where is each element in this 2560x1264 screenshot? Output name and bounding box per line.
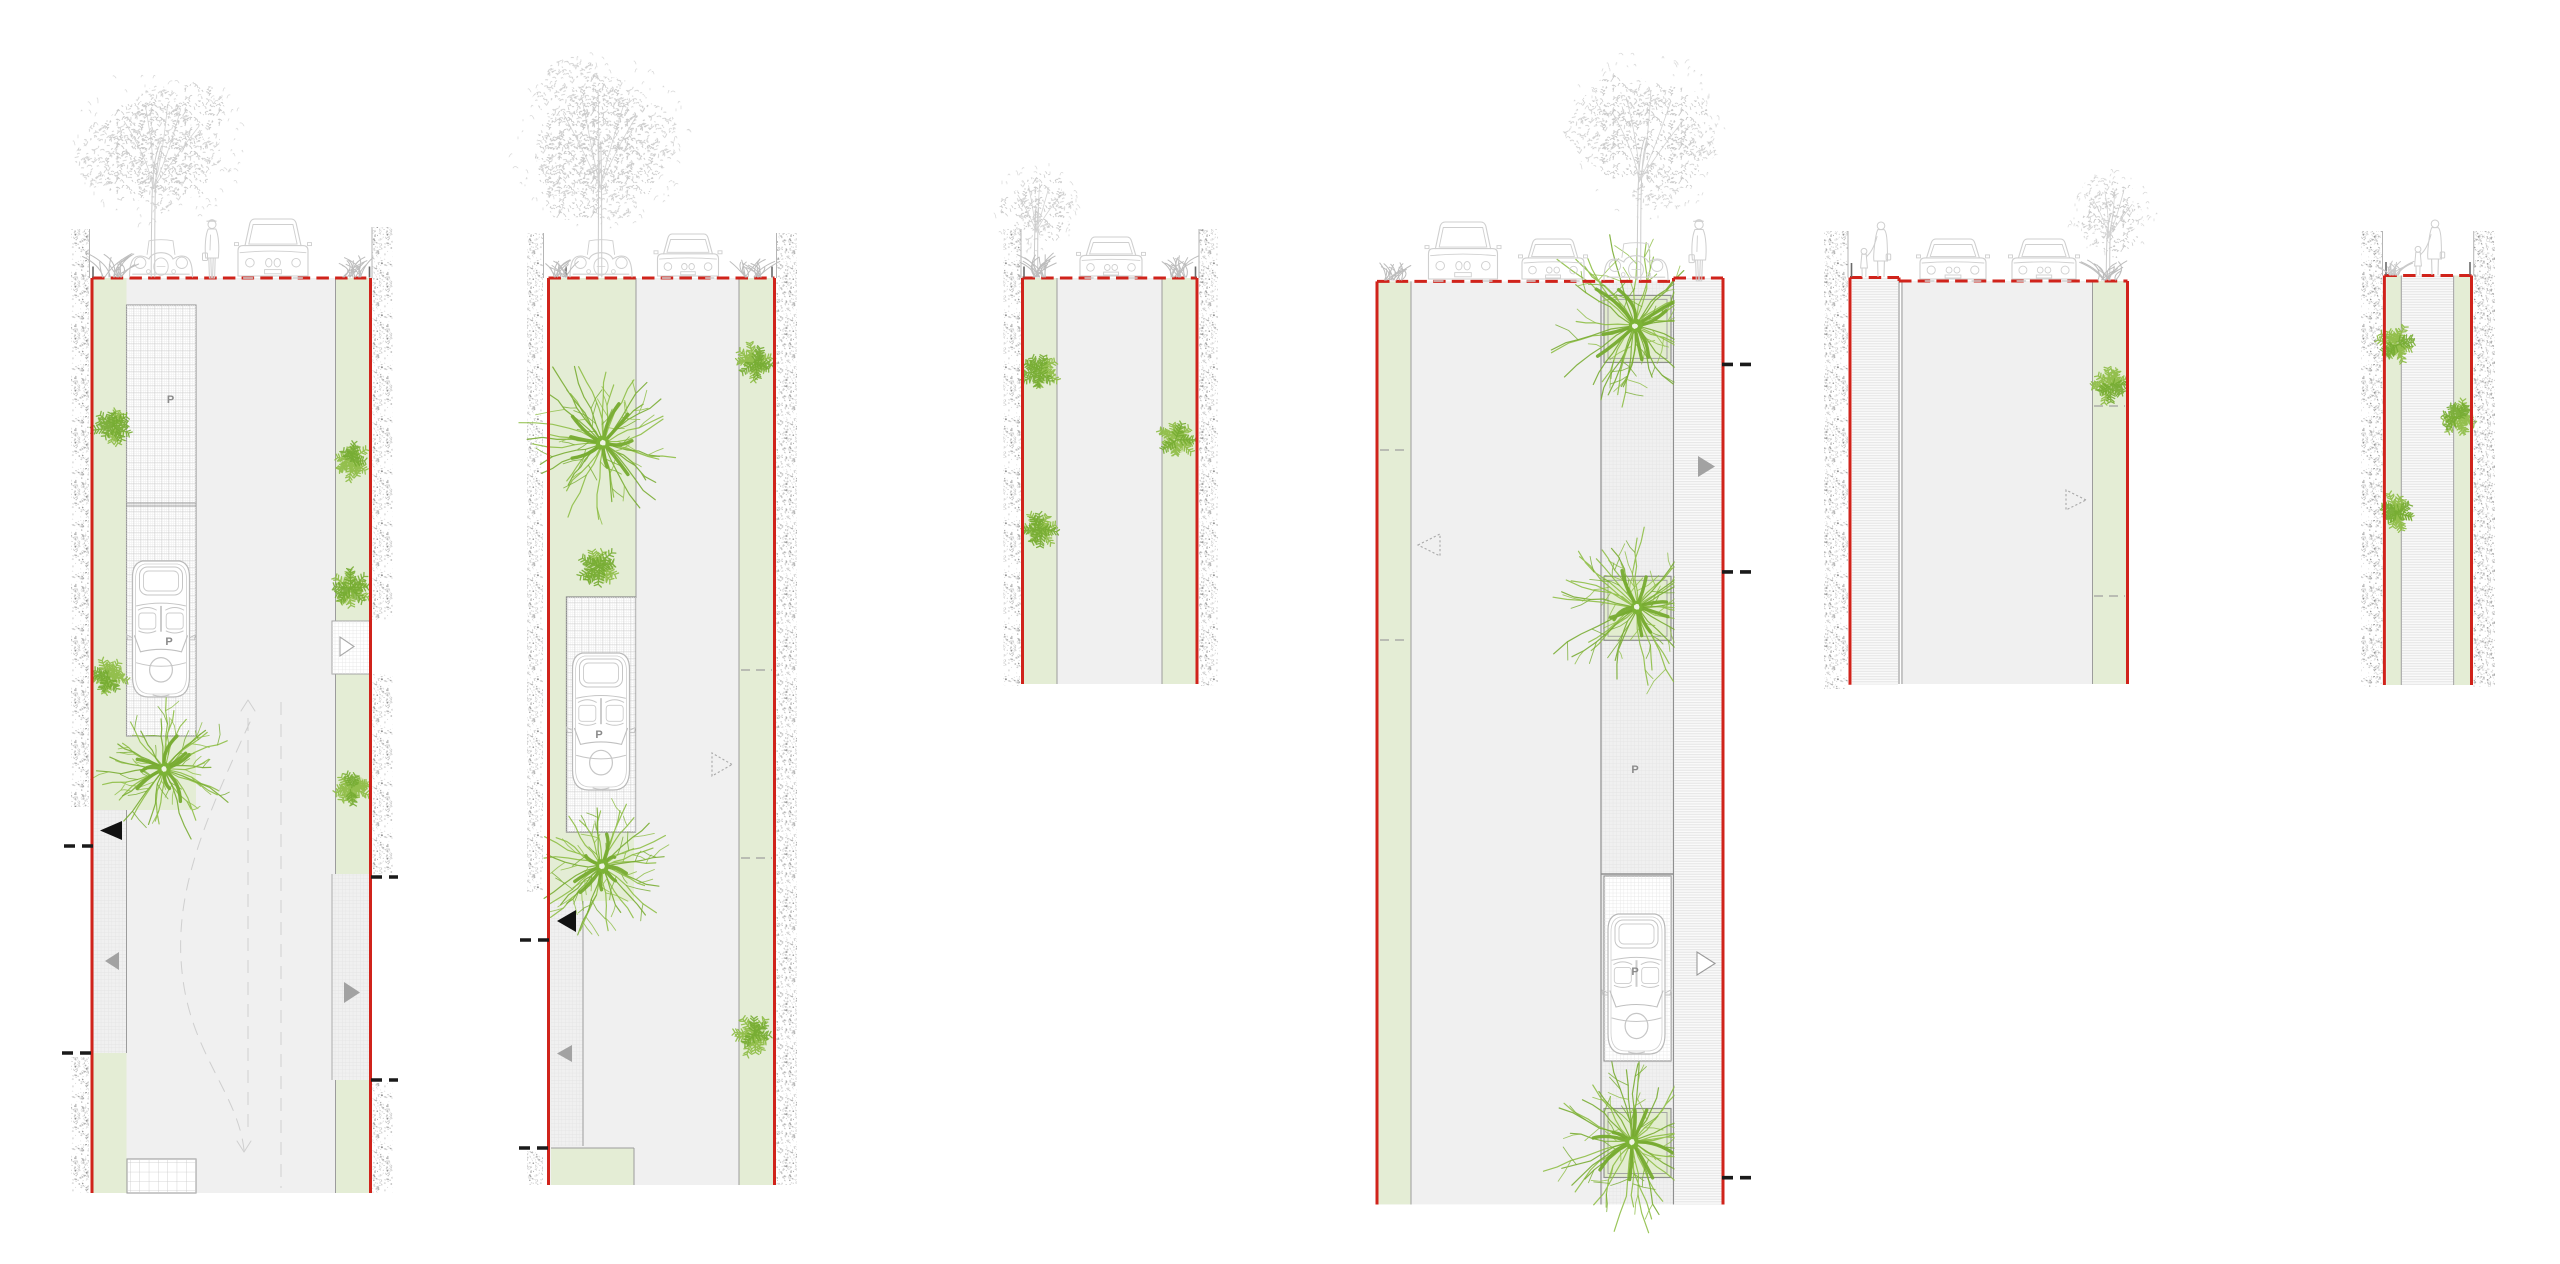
svg-text:P: P xyxy=(1631,966,1638,978)
svg-text:P: P xyxy=(165,636,172,648)
svg-text:P: P xyxy=(167,394,174,406)
svg-text:P: P xyxy=(595,729,602,741)
svg-text:P: P xyxy=(1631,764,1638,776)
